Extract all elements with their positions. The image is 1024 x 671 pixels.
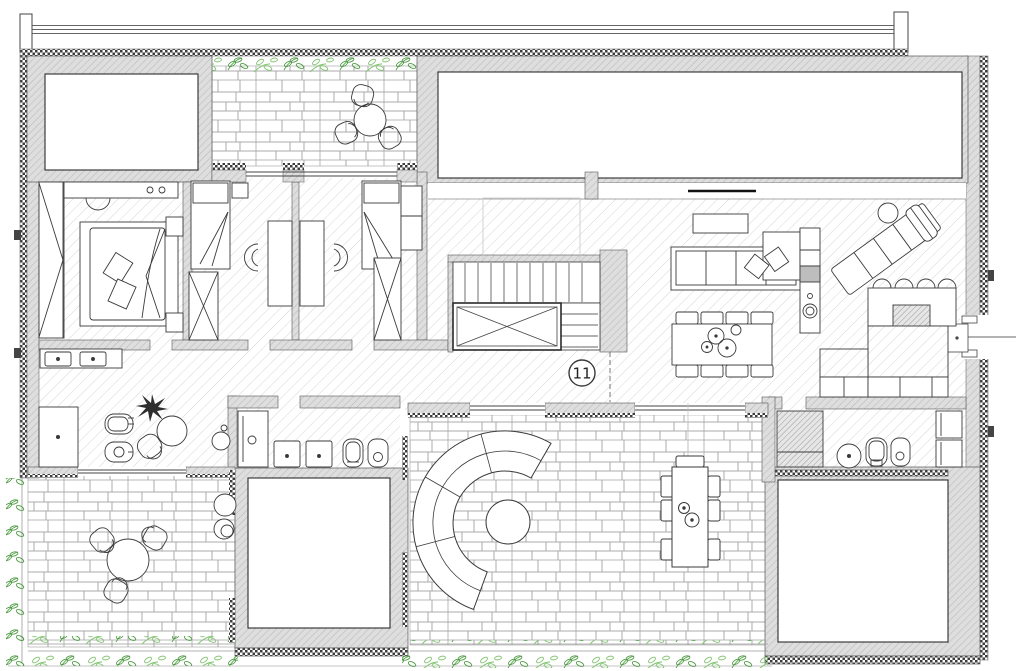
toilet [105,414,134,434]
counter-strip [800,228,820,333]
kitchen-counter-2 [820,349,868,377]
unit-label-badge: 11 [569,360,595,386]
room-bottom-right [778,480,948,642]
bed-single [191,181,230,269]
unit-label-text: 11 [572,365,591,383]
kitchen-counter [868,326,948,377]
nightstand [166,217,183,236]
outdoor-table [672,467,708,567]
wardrobe-master [39,182,64,338]
planter-pot [214,494,236,516]
bidet [891,438,910,466]
room-bottom-left [248,478,390,628]
desk [300,221,324,306]
bed-single [362,181,401,269]
shower [777,411,823,467]
bidet [105,442,133,462]
wardrobe [189,272,218,340]
side-table [878,203,898,223]
sink [306,441,332,467]
room-top-right [438,72,962,178]
patio-table [107,539,149,581]
insulation-top [20,49,908,56]
insulation-room-bottom-left [235,648,408,656]
kitchen-cabinets-2 [868,377,948,397]
wall-stair-right [600,250,627,352]
cabinet [401,186,422,250]
toilet [343,439,363,467]
wardrobe [374,258,401,340]
bidet [368,439,388,467]
desk [268,221,292,306]
insulation-left [20,56,27,478]
round-coffee-table [486,500,530,544]
floor-plan-drawing: 11 [0,0,1024,671]
floor-plan-canvas: 11 [0,0,1024,671]
insulation-bath-right [775,470,948,476]
room-top-left [45,74,198,170]
planting-top [212,55,417,80]
planting-bottom-center [402,640,768,668]
shelf [232,183,248,198]
planting-bottom-left [20,636,238,666]
patio-top-paving [212,66,417,166]
sink [274,441,300,467]
nightstand [166,313,183,332]
wall-basin [212,432,230,450]
wall-pier-hall [585,172,598,199]
insulation-room-bottom-right [765,656,980,664]
bed-master [80,217,183,332]
coffee-table [693,214,748,233]
dining-area [672,312,773,377]
wall-bed2-bed3 [292,182,299,340]
shower [238,411,268,467]
side-table-round [157,416,187,446]
closet-row [58,182,178,198]
toilet [866,438,887,466]
